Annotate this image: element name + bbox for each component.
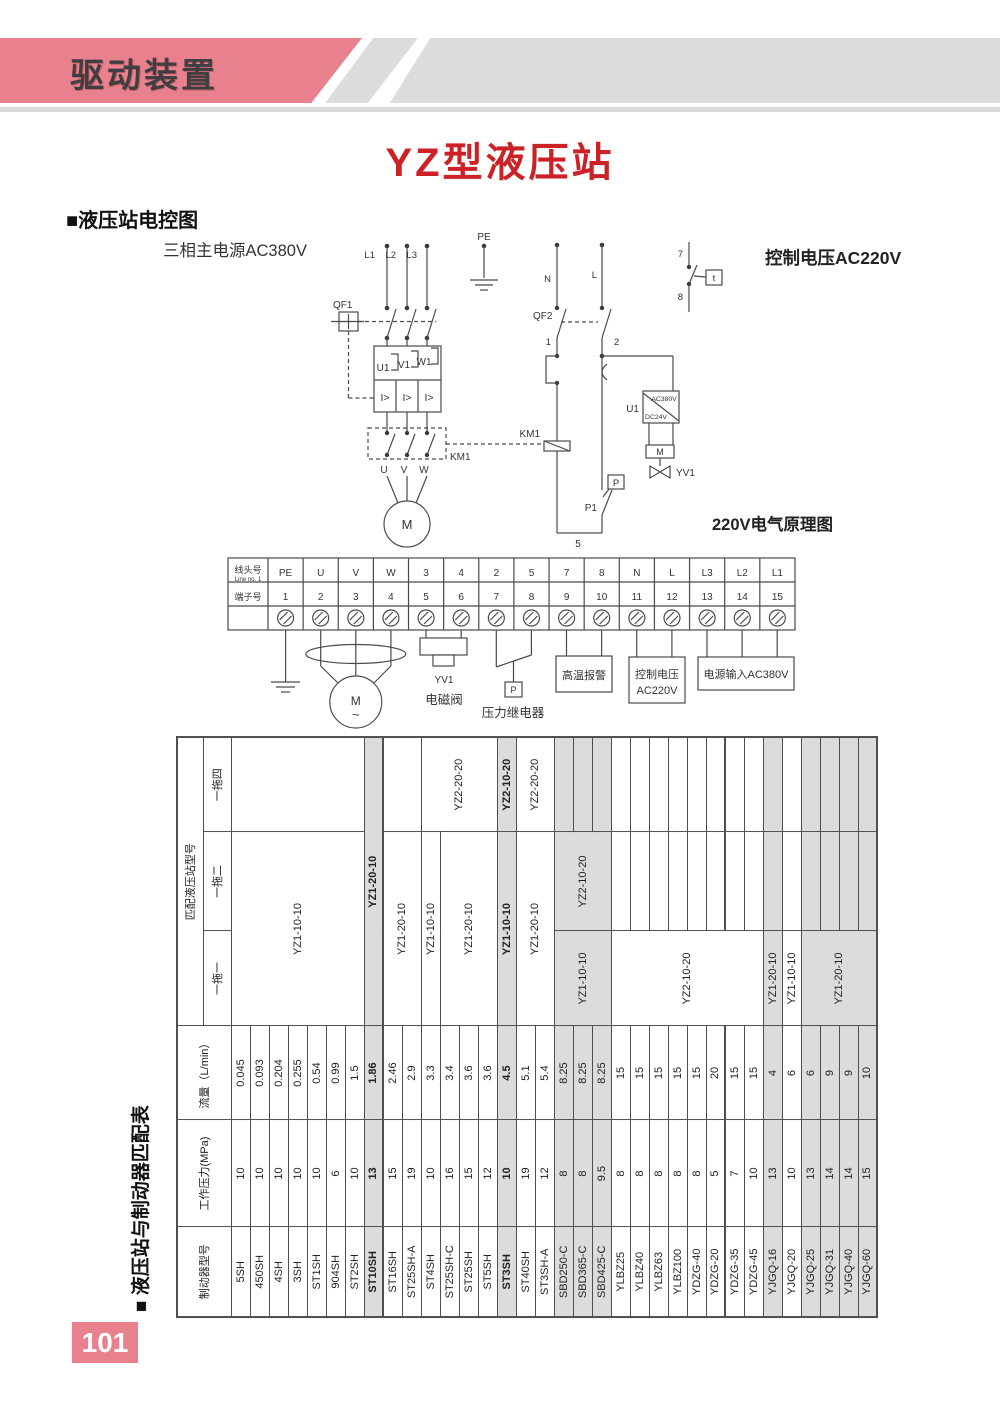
terminal-number: 6 bbox=[458, 592, 464, 603]
flow-rate: 15 bbox=[668, 1026, 687, 1120]
flow-rate: 15 bbox=[687, 1026, 706, 1120]
terminal-number: 15 bbox=[772, 592, 784, 603]
table-row: YDZG-35715 bbox=[725, 737, 744, 1317]
line-label: L3 bbox=[702, 568, 714, 579]
line-label: L bbox=[669, 568, 675, 579]
brake-model: ST16SH bbox=[383, 1227, 402, 1317]
header-model: 制动器型号 bbox=[177, 1227, 231, 1317]
match-station-empty bbox=[649, 832, 668, 931]
control-voltage-box-label1: 控制电压 bbox=[635, 667, 679, 681]
flow-rate: 0.204 bbox=[269, 1026, 288, 1120]
node-5-label: 5 bbox=[575, 539, 581, 550]
brake-model: ST10SH bbox=[364, 1227, 383, 1317]
flow-rate: 0.093 bbox=[250, 1026, 269, 1120]
line-label: 7 bbox=[564, 568, 570, 579]
l-label: L bbox=[592, 270, 597, 281]
working-pressure: 8 bbox=[649, 1120, 668, 1227]
match-station-empty bbox=[592, 737, 611, 832]
match-station: YZ1-20-10 bbox=[383, 832, 421, 1026]
qf2-label: QF2 bbox=[533, 311, 553, 322]
table-row: YJGQ-601510 bbox=[858, 737, 877, 1317]
flow-rate: 3.4 bbox=[440, 1026, 459, 1120]
table-row: ST16SH152.46YZ1-20-10 bbox=[383, 737, 402, 1317]
table-row: SBD365-C88.25 bbox=[573, 737, 592, 1317]
catalog-page: 驱动装置 YZ型液压站 ■液压站电控图 三相主电源AC380V L1 L2 L3… bbox=[0, 0, 1000, 1414]
match-station: YZ1-20-10 bbox=[801, 931, 877, 1026]
brake-model: YDZG-45 bbox=[744, 1227, 763, 1317]
match-table-wrap: 制动器型号工作压力(MPa)流量（L/min）匹配液压站型号一拖一一拖二一拖四5… bbox=[176, 736, 877, 1316]
match-station: YZ2-10-20 bbox=[497, 737, 516, 832]
working-pressure: 8 bbox=[573, 1120, 592, 1227]
match-station: YZ1-20-10 bbox=[440, 832, 497, 1026]
main-power-label: 三相主电源AC380V bbox=[163, 241, 307, 260]
overload-v1-label: V1 bbox=[398, 360, 411, 371]
km1-contacts-label: KM1 bbox=[450, 452, 471, 463]
pressure-relay-p-label: P bbox=[510, 685, 516, 695]
match-station-empty bbox=[630, 832, 649, 931]
working-pressure: 13 bbox=[801, 1120, 820, 1227]
match-station: YZ2-10-20 bbox=[554, 832, 611, 931]
match-station-empty bbox=[858, 832, 877, 931]
line-label: 3 bbox=[423, 568, 429, 579]
terminal-number: 10 bbox=[596, 592, 608, 603]
line-label: L2 bbox=[737, 568, 749, 579]
brake-model: YJGQ-40 bbox=[839, 1227, 858, 1317]
match-station-empty bbox=[611, 737, 630, 832]
pressure-switch-p-label: P bbox=[613, 478, 619, 489]
phase-l3-label: L3 bbox=[406, 250, 417, 261]
brake-model: 904SH bbox=[326, 1227, 345, 1317]
match-station-empty bbox=[744, 832, 763, 931]
line-no-header: 线头号 bbox=[234, 564, 261, 575]
line-label: V bbox=[352, 568, 359, 579]
working-pressure: 6 bbox=[326, 1120, 345, 1227]
flow-rate: 15 bbox=[725, 1026, 744, 1120]
flow-rate: 15 bbox=[611, 1026, 630, 1120]
pressure-relay-label: 压力继电器 bbox=[482, 706, 545, 720]
brake-model: YDZG-35 bbox=[725, 1227, 744, 1317]
power-input-label: 电源输入AC380V bbox=[704, 667, 790, 681]
table-row: YLBZ63815 bbox=[649, 737, 668, 1317]
match-station: YZ2-10-20 bbox=[611, 931, 763, 1026]
flow-rate: 4.5 bbox=[497, 1026, 516, 1120]
match-station: YZ1-10-10 bbox=[554, 931, 611, 1026]
match-station-empty bbox=[782, 832, 801, 931]
table-row: YDZG-20520 bbox=[706, 737, 725, 1317]
brake-model: YLBZ40 bbox=[630, 1227, 649, 1317]
brake-model: ST3SH-A bbox=[535, 1227, 554, 1317]
page-number-badge: 101 bbox=[72, 1322, 138, 1363]
motor-symbol-label: M bbox=[351, 694, 361, 708]
working-pressure: 10 bbox=[250, 1120, 269, 1227]
solenoid-valve-label: 电磁阀 bbox=[425, 692, 463, 707]
working-pressure: 10 bbox=[307, 1120, 326, 1227]
line-label: PE bbox=[279, 568, 293, 579]
match-station-empty bbox=[839, 737, 858, 832]
match-station-empty bbox=[668, 832, 687, 931]
schematic-label: 220V电气原理图 bbox=[712, 514, 833, 534]
line-label: 5 bbox=[529, 568, 535, 579]
section-title-match-table: ■ 液压站与制动器匹配表 bbox=[126, 1105, 153, 1312]
yv1-valve-label: YV1 bbox=[676, 468, 695, 479]
working-pressure: 13 bbox=[364, 1120, 383, 1227]
three-phase-circuit: 三相主电源AC380V L1 L2 L3 QF1 U1 V1 W bbox=[163, 232, 544, 547]
terminal-components: M ~ YV1 电磁阀 P 压力继电器 高温报警 控制电压 AC220V bbox=[271, 630, 794, 728]
table-row: SBD425-C9.58.25 bbox=[592, 737, 611, 1317]
brake-model: ST3SH bbox=[497, 1227, 516, 1317]
flow-rate: 2.9 bbox=[402, 1026, 421, 1120]
working-pressure: 19 bbox=[516, 1120, 535, 1227]
working-pressure: 8 bbox=[687, 1120, 706, 1227]
terminal-number: 13 bbox=[702, 592, 714, 603]
flow-rate: 1.86 bbox=[364, 1026, 383, 1120]
table-row: ST40SH195.1YZ1-20-10YZ2-20-20 bbox=[516, 737, 535, 1317]
table-row: YJGQ-20106YZ1-10-10 bbox=[782, 737, 801, 1317]
match-station: YZ2-20-20 bbox=[516, 737, 554, 832]
yv1-bottom-label: YV1 bbox=[435, 675, 454, 686]
high-temp-alarm-label: 高温报警 bbox=[562, 668, 606, 682]
working-pressure: 13 bbox=[763, 1120, 782, 1227]
control-voltage-label: 控制电压AC220V bbox=[765, 248, 901, 268]
table-row: 5SH100.045YZ1-10-10 bbox=[231, 737, 250, 1317]
working-pressure: 8 bbox=[554, 1120, 573, 1227]
overload-w1-label: W1 bbox=[417, 357, 432, 368]
brake-model: ST25SH-C bbox=[440, 1227, 459, 1317]
working-pressure: 14 bbox=[839, 1120, 858, 1227]
working-pressure: 10 bbox=[288, 1120, 307, 1227]
dc24-label: DC24V bbox=[645, 414, 667, 421]
brake-model: ST5SH bbox=[478, 1227, 497, 1317]
line-label: L1 bbox=[772, 568, 784, 579]
line-label: W bbox=[386, 568, 396, 579]
line-label: 2 bbox=[494, 568, 500, 579]
brake-model: YLBZ25 bbox=[611, 1227, 630, 1317]
terminal-strip: 线头号 Line no. 1 端子号 PE1U2V3W4354627587981… bbox=[228, 558, 795, 630]
match-station-empty bbox=[687, 737, 706, 832]
match-station-empty bbox=[706, 737, 725, 832]
flow-rate: 5.1 bbox=[516, 1026, 535, 1120]
working-pressure: 10 bbox=[421, 1120, 440, 1227]
brake-model: YJGQ-31 bbox=[820, 1227, 839, 1317]
working-pressure: 10 bbox=[231, 1120, 250, 1227]
flow-rate: 9 bbox=[839, 1026, 858, 1120]
contact-8-label: 8 bbox=[678, 292, 683, 303]
motor-w-label: W bbox=[419, 465, 429, 476]
flow-rate: 20 bbox=[706, 1026, 725, 1120]
km1-coil-label: KM1 bbox=[519, 429, 540, 440]
brake-model: 4SH bbox=[269, 1227, 288, 1317]
flow-rate: 0.045 bbox=[231, 1026, 250, 1120]
table-row: YJGQ-31149 bbox=[820, 737, 839, 1317]
table-row: ST3SH104.5YZ1-10-10YZ2-10-20 bbox=[497, 737, 516, 1317]
brake-model: YJGQ-16 bbox=[763, 1227, 782, 1317]
brake-model: YDZG-40 bbox=[687, 1227, 706, 1317]
working-pressure: 10 bbox=[345, 1120, 364, 1227]
pe-label: PE bbox=[477, 232, 491, 243]
working-pressure: 8 bbox=[611, 1120, 630, 1227]
brake-model: SBD425-C bbox=[592, 1227, 611, 1317]
line-label: U bbox=[317, 568, 324, 579]
brake-model: 5SH bbox=[231, 1227, 250, 1317]
match-station-empty bbox=[630, 737, 649, 832]
match-station-empty bbox=[763, 832, 782, 931]
table-row: YJGQ-40149 bbox=[839, 737, 858, 1317]
terminal-number: 4 bbox=[388, 592, 394, 603]
control-circuit: 控制电压AC220V 220V电气原理图 N QF2 1 KM1 5 L 2 bbox=[519, 242, 901, 550]
contact-1-label: 1 bbox=[546, 337, 551, 348]
brake-model: YJGQ-25 bbox=[801, 1227, 820, 1317]
match-station: YZ1-20-10 bbox=[516, 832, 554, 1026]
table-row: ST4SH103.3YZ1-10-10YZ2-20-20 bbox=[421, 737, 440, 1317]
flow-rate: 8.25 bbox=[592, 1026, 611, 1120]
overcurrent-2-label: I> bbox=[402, 392, 411, 404]
flow-rate: 15 bbox=[744, 1026, 763, 1120]
line-label: 4 bbox=[458, 568, 464, 579]
phase-l2-label: L2 bbox=[385, 250, 396, 261]
match-station-empty bbox=[839, 832, 858, 931]
table-row: SBD250-C88.25YZ1-10-10YZ2-10-20 bbox=[554, 737, 573, 1317]
brake-model: 3SH bbox=[288, 1227, 307, 1317]
terminal-number: 3 bbox=[353, 592, 359, 603]
working-pressure: 19 bbox=[402, 1120, 421, 1227]
working-pressure: 10 bbox=[782, 1120, 801, 1227]
flow-rate: 8.25 bbox=[573, 1026, 592, 1120]
overcurrent-3-label: I> bbox=[424, 392, 433, 404]
match-station-empty bbox=[706, 832, 725, 931]
match-station-empty bbox=[611, 832, 630, 931]
working-pressure: 8 bbox=[630, 1120, 649, 1227]
temperature-t-label: t bbox=[713, 273, 716, 284]
overcurrent-1-label: I> bbox=[380, 392, 389, 404]
terminal-number: 7 bbox=[494, 592, 500, 603]
flow-rate: 2.46 bbox=[383, 1026, 402, 1120]
working-pressure: 7 bbox=[725, 1120, 744, 1227]
match-station bbox=[383, 737, 421, 832]
working-pressure: 15 bbox=[858, 1120, 877, 1227]
phase-l1-label: L1 bbox=[364, 250, 375, 261]
working-pressure: 10 bbox=[744, 1120, 763, 1227]
table-row: YDZG-451015 bbox=[744, 737, 763, 1317]
match-station-empty bbox=[820, 737, 839, 832]
flow-rate: 9 bbox=[820, 1026, 839, 1120]
flow-rate: 15 bbox=[630, 1026, 649, 1120]
line-label: 8 bbox=[599, 568, 605, 579]
match-station-empty bbox=[725, 832, 744, 931]
flow-rate: 3.3 bbox=[421, 1026, 440, 1120]
brake-model: YJGQ-20 bbox=[782, 1227, 801, 1317]
match-station: YZ2-20-20 bbox=[421, 737, 497, 832]
match-station-empty bbox=[820, 832, 839, 931]
match-station: YZ1-20-10 bbox=[763, 931, 782, 1026]
match-station-empty bbox=[687, 832, 706, 931]
match-station-empty bbox=[801, 737, 820, 832]
table-row: YLBZ25815YZ2-10-20 bbox=[611, 737, 630, 1317]
header-one-to-two: 一拖二 bbox=[203, 832, 231, 931]
brake-model: ST25SH bbox=[459, 1227, 478, 1317]
overload-u1-label: U1 bbox=[377, 363, 390, 374]
flow-rate: 3.6 bbox=[478, 1026, 497, 1120]
working-pressure: 15 bbox=[459, 1120, 478, 1227]
motor-u-label: U bbox=[380, 465, 387, 476]
working-pressure: 10 bbox=[269, 1120, 288, 1227]
terminal-number: 8 bbox=[529, 592, 535, 603]
line-no-header-en: Line no. 1 bbox=[235, 577, 262, 583]
ac380-label: AC380V bbox=[651, 396, 677, 403]
table-row: YLBZ40815 bbox=[630, 737, 649, 1317]
working-pressure: 5 bbox=[706, 1120, 725, 1227]
flow-rate: 10 bbox=[858, 1026, 877, 1120]
brake-model: ST2SH bbox=[345, 1227, 364, 1317]
match-station-empty bbox=[725, 737, 744, 832]
terminal-number: 1 bbox=[283, 592, 289, 603]
terminal-no-header: 端子号 bbox=[234, 591, 261, 602]
brake-model: ST4SH bbox=[421, 1227, 440, 1317]
match-station-empty bbox=[763, 737, 782, 832]
motor-label: M bbox=[402, 517, 413, 532]
match-station-empty bbox=[801, 832, 820, 931]
flow-rate: 0.255 bbox=[288, 1026, 307, 1120]
match-station-empty bbox=[668, 737, 687, 832]
table-row: YJGQ-16134YZ1-20-10 bbox=[763, 737, 782, 1317]
working-pressure: 14 bbox=[820, 1120, 839, 1227]
match-station-empty bbox=[858, 737, 877, 832]
flow-rate: 6 bbox=[801, 1026, 820, 1120]
header-pressure: 工作压力(MPa) bbox=[177, 1120, 231, 1227]
brake-model: YLBZ63 bbox=[649, 1227, 668, 1317]
p1-label: P1 bbox=[585, 503, 598, 514]
table-row: ST10SH131.86YZ1-20-10 bbox=[364, 737, 383, 1317]
brake-model: 450SH bbox=[250, 1227, 269, 1317]
flow-rate: 4 bbox=[763, 1026, 782, 1120]
line-label: N bbox=[633, 568, 640, 579]
match-station bbox=[231, 737, 364, 832]
brake-model: YLBZ100 bbox=[668, 1227, 687, 1317]
terminal-number: 12 bbox=[666, 592, 678, 603]
contact-7-label: 7 bbox=[678, 249, 683, 260]
brake-model: ST25SH-A bbox=[402, 1227, 421, 1317]
control-voltage-box-label2: AC220V bbox=[637, 685, 679, 697]
header-one-to-one: 一拖一 bbox=[203, 931, 231, 1026]
match-station: YZ1-20-10 bbox=[364, 737, 383, 1026]
match-station: YZ1-10-10 bbox=[782, 931, 801, 1026]
flow-rate: 8.25 bbox=[554, 1026, 573, 1120]
terminal-number: 5 bbox=[423, 592, 429, 603]
match-station-empty bbox=[573, 737, 592, 832]
working-pressure: 12 bbox=[535, 1120, 554, 1227]
brake-model: YJGQ-60 bbox=[858, 1227, 877, 1317]
u1-transformer-label: U1 bbox=[626, 404, 639, 415]
flow-rate: 6 bbox=[782, 1026, 801, 1120]
table-row: YLBZ100815 bbox=[668, 737, 687, 1317]
working-pressure: 16 bbox=[440, 1120, 459, 1227]
match-station-empty bbox=[744, 737, 763, 832]
working-pressure: 10 bbox=[497, 1120, 516, 1227]
working-pressure: 12 bbox=[478, 1120, 497, 1227]
n-label: N bbox=[544, 274, 551, 285]
terminal-number: 14 bbox=[737, 592, 749, 603]
flow-rate: 3.6 bbox=[459, 1026, 478, 1120]
valve-motor-label: M bbox=[656, 447, 664, 457]
terminal-number: 2 bbox=[318, 592, 324, 603]
match-table: 制动器型号工作压力(MPa)流量（L/min）匹配液压站型号一拖一一拖二一拖四5… bbox=[176, 736, 878, 1318]
brake-model: ST40SH bbox=[516, 1227, 535, 1317]
brake-model: SBD250-C bbox=[554, 1227, 573, 1317]
brake-model: SBD365-C bbox=[573, 1227, 592, 1317]
brake-model: YDZG-20 bbox=[706, 1227, 725, 1317]
flow-rate: 15 bbox=[649, 1026, 668, 1120]
flow-rate: 0.54 bbox=[307, 1026, 326, 1120]
flow-rate: 5.4 bbox=[535, 1026, 554, 1120]
motor-wave-symbol: ~ bbox=[352, 707, 360, 722]
working-pressure: 8 bbox=[668, 1120, 687, 1227]
match-station: YZ1-10-10 bbox=[421, 832, 440, 1026]
working-pressure: 9.5 bbox=[592, 1120, 611, 1227]
brake-model: ST1SH bbox=[307, 1227, 326, 1317]
match-station-empty bbox=[554, 737, 573, 832]
header-one-to-four: 一拖四 bbox=[203, 737, 231, 832]
flow-rate: 1.5 bbox=[345, 1026, 364, 1120]
terminal-number: 9 bbox=[564, 592, 570, 603]
flow-rate: 0.99 bbox=[326, 1026, 345, 1120]
match-station: YZ1-10-10 bbox=[497, 832, 516, 1026]
match-station-empty bbox=[782, 737, 801, 832]
header-flow: 流量（L/min） bbox=[177, 1026, 231, 1120]
table-row: YDZG-40815 bbox=[687, 737, 706, 1317]
working-pressure: 15 bbox=[383, 1120, 402, 1227]
motor-v-label: V bbox=[401, 465, 408, 476]
terminal-number: 11 bbox=[632, 592, 643, 603]
header-match: 匹配液压站型号 bbox=[177, 737, 203, 1026]
match-station-empty bbox=[649, 737, 668, 832]
contact-2-label: 2 bbox=[614, 337, 619, 348]
match-station: YZ1-10-10 bbox=[231, 832, 364, 1026]
qf1-label: QF1 bbox=[333, 300, 353, 311]
table-row: YJGQ-25136YZ1-20-10 bbox=[801, 737, 820, 1317]
